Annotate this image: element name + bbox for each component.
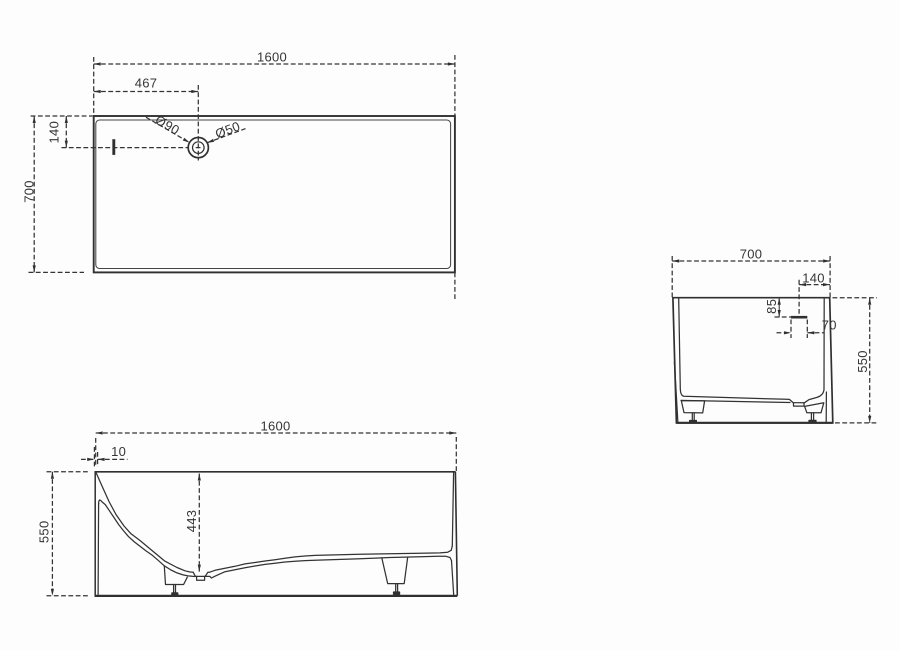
svg-text:550: 550	[36, 521, 51, 544]
svg-text:70: 70	[822, 317, 837, 332]
svg-text:140: 140	[802, 271, 825, 286]
svg-text:700: 700	[740, 247, 763, 262]
svg-text:700: 700	[21, 180, 36, 203]
svg-text:443: 443	[184, 510, 199, 533]
svg-text:467: 467	[135, 75, 158, 90]
svg-text:85: 85	[764, 299, 779, 314]
svg-text:140: 140	[46, 121, 61, 144]
svg-text:550: 550	[855, 350, 870, 373]
svg-text:1600: 1600	[260, 419, 290, 434]
svg-text:10: 10	[111, 444, 126, 459]
svg-text:1600: 1600	[257, 49, 287, 64]
